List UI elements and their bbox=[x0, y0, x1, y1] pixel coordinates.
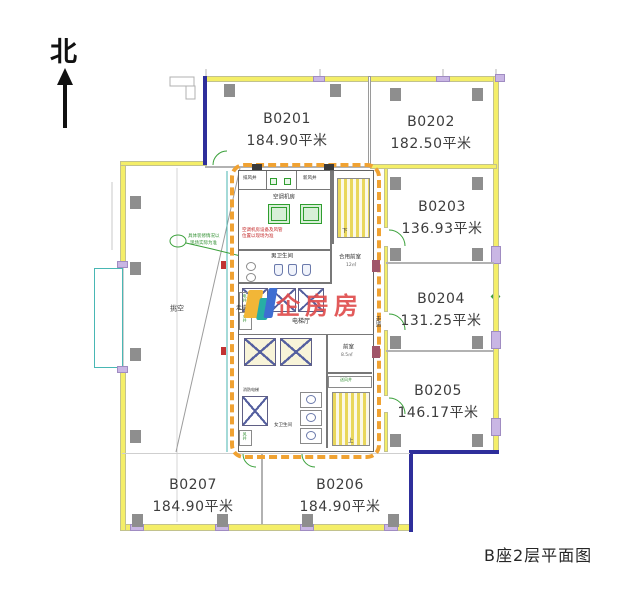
callout-bubble bbox=[170, 235, 186, 247]
room-id: B0206 bbox=[265, 474, 415, 496]
room-area: 146.17平米 bbox=[363, 402, 513, 424]
column bbox=[330, 84, 341, 97]
window-right-2 bbox=[491, 331, 501, 349]
toilet-icon bbox=[306, 413, 316, 422]
fan-icon bbox=[284, 178, 291, 185]
hall-wall-s bbox=[239, 334, 374, 335]
ahu-unit-1 bbox=[268, 204, 290, 224]
room-area: 184.90平米 bbox=[265, 496, 415, 518]
red-note-line1: 空调机房设备及风管 bbox=[242, 228, 283, 233]
wall-navy-step-h bbox=[409, 450, 499, 454]
ahu-unit-2 bbox=[300, 204, 322, 224]
toilet-icon bbox=[306, 395, 316, 404]
lobby-wall-w bbox=[330, 244, 332, 284]
supply-shaft-label: 送风井 bbox=[340, 378, 352, 382]
wall-navy-lefttop bbox=[203, 76, 207, 165]
room-id: B0204 bbox=[366, 288, 516, 310]
column bbox=[390, 248, 401, 261]
column bbox=[472, 177, 483, 190]
column bbox=[130, 348, 141, 361]
north-arrow-shaft bbox=[63, 84, 67, 128]
shared-front-room-area: 12㎡ bbox=[346, 263, 356, 268]
north-arrow-icon bbox=[57, 68, 73, 85]
corner-notch-2 bbox=[186, 86, 195, 99]
urinal-icon bbox=[274, 264, 283, 276]
wall-under-b0202 bbox=[370, 164, 497, 169]
column bbox=[472, 248, 483, 261]
room-area: 184.90平米 bbox=[118, 496, 268, 518]
fan-icon bbox=[270, 178, 277, 185]
mens-toilet-label: 男卫生间 bbox=[271, 253, 293, 259]
shaft-sep-1 bbox=[266, 171, 267, 189]
corner-frame-topright bbox=[495, 74, 505, 82]
stair-up-label: 上 bbox=[348, 438, 354, 444]
womens-toilet-label: 女卫生间 bbox=[274, 423, 292, 428]
wall-top bbox=[205, 76, 497, 82]
column bbox=[130, 430, 141, 443]
urinal-icon bbox=[302, 264, 311, 276]
column bbox=[390, 336, 401, 349]
fire-elevator-label: 消防电梯 bbox=[243, 388, 259, 392]
column bbox=[472, 434, 483, 447]
door-leaf-1 bbox=[372, 260, 380, 272]
partition-b0203-b0204 bbox=[386, 262, 494, 264]
door-leaf-2 bbox=[372, 346, 380, 358]
north-label: 北 bbox=[50, 30, 77, 69]
wind-shaft-label: 风井 bbox=[242, 432, 246, 440]
green-note-line2: 现场实际为准 bbox=[190, 241, 217, 246]
room-label-b0207: B0207 184.90平米 bbox=[118, 474, 268, 518]
balcony-cap-top bbox=[117, 261, 128, 268]
door-arc-b0201 bbox=[213, 151, 227, 165]
red-marker-1 bbox=[221, 261, 226, 269]
toilet-icon bbox=[306, 431, 316, 440]
room-id: B0202 bbox=[356, 111, 506, 133]
red-marker-2 bbox=[221, 347, 226, 355]
wall-bottom bbox=[120, 524, 413, 531]
void-label: 挑空 bbox=[170, 305, 184, 313]
column bbox=[224, 84, 235, 97]
machine-room-wall-s bbox=[239, 249, 332, 251]
column bbox=[472, 336, 483, 349]
room-label-b0205: B0205 146.17平米 bbox=[363, 380, 513, 424]
front-room-label: 前室 bbox=[343, 344, 354, 350]
elevator-shaft bbox=[244, 338, 276, 366]
exhaust-shaft-label: 排风井 bbox=[243, 176, 257, 181]
column bbox=[472, 88, 483, 101]
stair-wall-w bbox=[332, 171, 334, 244]
column bbox=[130, 196, 141, 209]
fresh-air-shaft-label: 新风井 bbox=[303, 176, 317, 181]
urinal-icon bbox=[288, 264, 297, 276]
column bbox=[390, 177, 401, 190]
column bbox=[390, 88, 401, 101]
room-id: B0201 bbox=[212, 108, 362, 130]
basin-icon bbox=[246, 262, 256, 271]
room-id: B0203 bbox=[367, 196, 517, 218]
room-label-b0202: B0202 182.50平米 bbox=[356, 111, 506, 155]
red-note-line2: 位置以现场为准 bbox=[242, 234, 274, 239]
wall-topleft-step bbox=[120, 161, 207, 166]
balcony-cap-bottom bbox=[117, 366, 128, 373]
room-id: B0207 bbox=[118, 474, 268, 496]
basin-icon bbox=[246, 273, 256, 282]
fire-elevator-shaft bbox=[242, 396, 268, 426]
room-area: 182.50平米 bbox=[356, 133, 506, 155]
core-wall-seg-2 bbox=[324, 164, 334, 170]
floor-plan-page: 北 bbox=[0, 0, 640, 600]
mens-wall-s bbox=[239, 282, 332, 284]
room-label-b0206: B0206 184.90平米 bbox=[265, 474, 415, 518]
window-top-2 bbox=[436, 76, 450, 82]
room-area: 131.25平米 bbox=[366, 310, 516, 332]
shaft-row-line bbox=[239, 189, 332, 190]
room-label-b0201: B0201 184.90平米 bbox=[212, 108, 362, 152]
room-id: B0205 bbox=[363, 380, 513, 402]
wall-left-upper bbox=[120, 163, 126, 268]
partition-b0204-b0205 bbox=[386, 350, 494, 352]
room-label-b0203: B0203 136.93平米 bbox=[367, 196, 517, 240]
room-area: 136.93平米 bbox=[367, 218, 517, 240]
green-note-line1: 具体装修情况以 bbox=[188, 234, 220, 239]
shared-front-room-label: 合用前室 bbox=[339, 254, 361, 260]
window-top-1 bbox=[313, 76, 325, 82]
stair-down-label: 下 bbox=[342, 228, 348, 234]
ac-room-label: 空调机房 bbox=[273, 194, 295, 200]
shaft-sep-2 bbox=[296, 171, 297, 189]
front-room-area: 8.5㎡ bbox=[341, 353, 353, 358]
elevator-shaft bbox=[280, 338, 312, 366]
page-title: B座2层平面图 bbox=[484, 542, 592, 566]
column bbox=[130, 262, 141, 275]
room-area: 184.90平米 bbox=[212, 130, 362, 152]
column bbox=[390, 434, 401, 447]
front-room-wall-w bbox=[326, 334, 328, 448]
watermark-text: 企房房 bbox=[276, 286, 363, 321]
core-wall-seg-1 bbox=[252, 164, 262, 170]
balcony-outline bbox=[94, 268, 123, 368]
room-label-b0204: B0204 131.25平米 bbox=[366, 288, 516, 332]
front-room-wall-s bbox=[326, 372, 372, 374]
corner-notch-1 bbox=[170, 77, 194, 86]
